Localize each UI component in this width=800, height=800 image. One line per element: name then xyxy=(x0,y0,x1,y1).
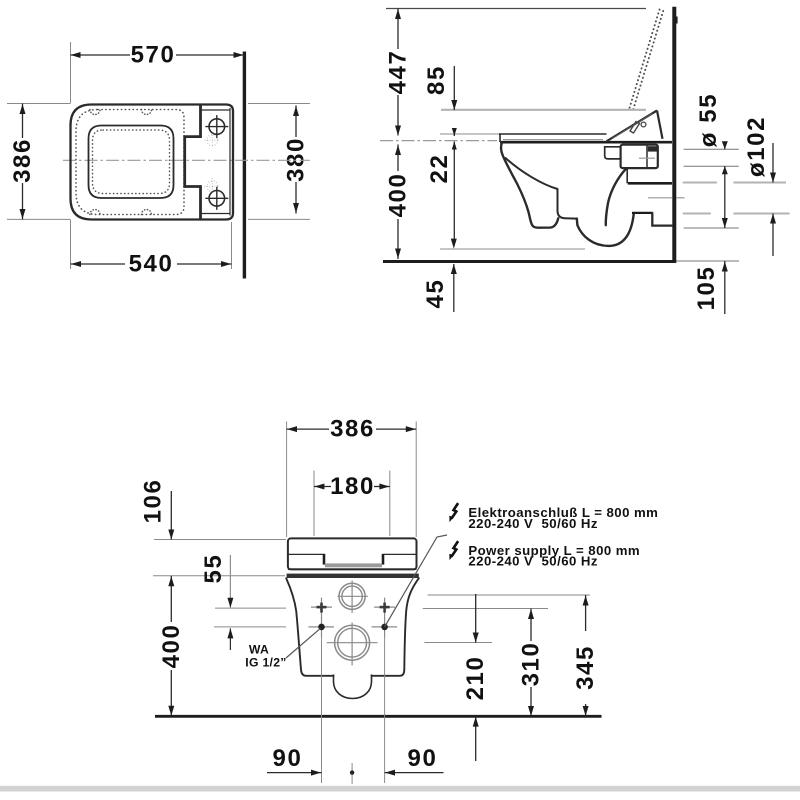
svg-text:400: 400 xyxy=(385,173,412,218)
svg-text:90: 90 xyxy=(273,745,303,772)
svg-text:22: 22 xyxy=(426,154,453,184)
svg-text:90: 90 xyxy=(408,745,438,772)
svg-text:105: 105 xyxy=(693,266,720,311)
svg-text:WA: WA xyxy=(249,643,269,657)
svg-text:85: 85 xyxy=(423,65,450,95)
svg-text:220-240 V 50/60 Hz: 220-240 V 50/60 Hz xyxy=(468,516,598,531)
svg-text:400: 400 xyxy=(158,624,185,669)
svg-text:380: 380 xyxy=(283,137,310,182)
svg-text:210: 210 xyxy=(462,656,489,701)
svg-text:180: 180 xyxy=(330,473,375,500)
svg-text:386: 386 xyxy=(9,138,36,183)
svg-text:45: 45 xyxy=(422,279,449,309)
svg-text:220-240 V 50/60 Hz: 220-240 V 50/60 Hz xyxy=(468,554,598,569)
svg-text:55: 55 xyxy=(200,554,227,584)
svg-text:345: 345 xyxy=(572,645,599,690)
svg-text:106: 106 xyxy=(140,479,167,524)
svg-text:447: 447 xyxy=(385,50,412,95)
svg-text:570: 570 xyxy=(131,42,176,69)
svg-text:310: 310 xyxy=(518,642,545,687)
svg-text:540: 540 xyxy=(129,251,174,278)
svg-text:386: 386 xyxy=(330,416,375,443)
svg-text:IG 1/2”: IG 1/2” xyxy=(245,656,286,670)
svg-text:ø 55: ø 55 xyxy=(695,93,722,147)
svg-text:ø102: ø102 xyxy=(743,116,770,177)
